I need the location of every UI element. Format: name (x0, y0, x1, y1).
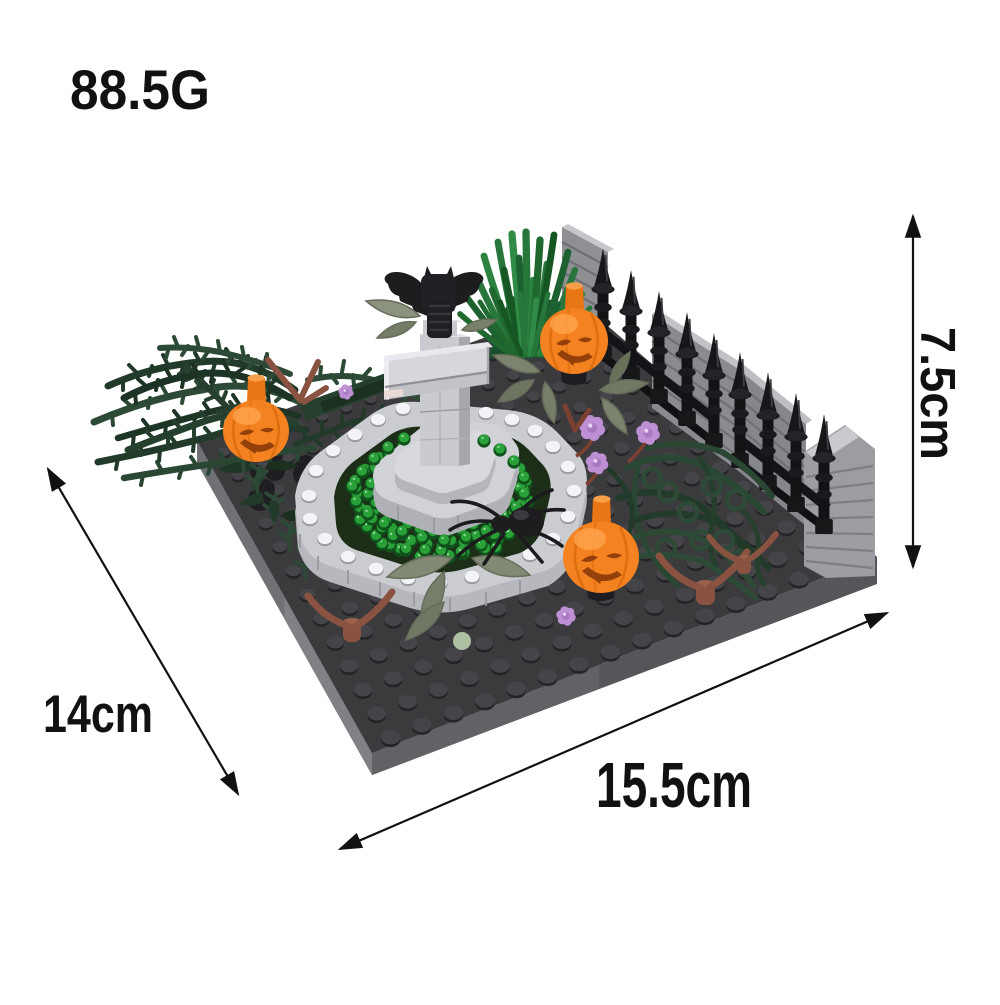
svg-text:14cm: 14cm (43, 685, 153, 744)
svg-text:15.5cm: 15.5cm (596, 749, 752, 821)
svg-text:7.5cm: 7.5cm (910, 327, 964, 460)
svg-text:88.5G: 88.5G (70, 58, 210, 121)
